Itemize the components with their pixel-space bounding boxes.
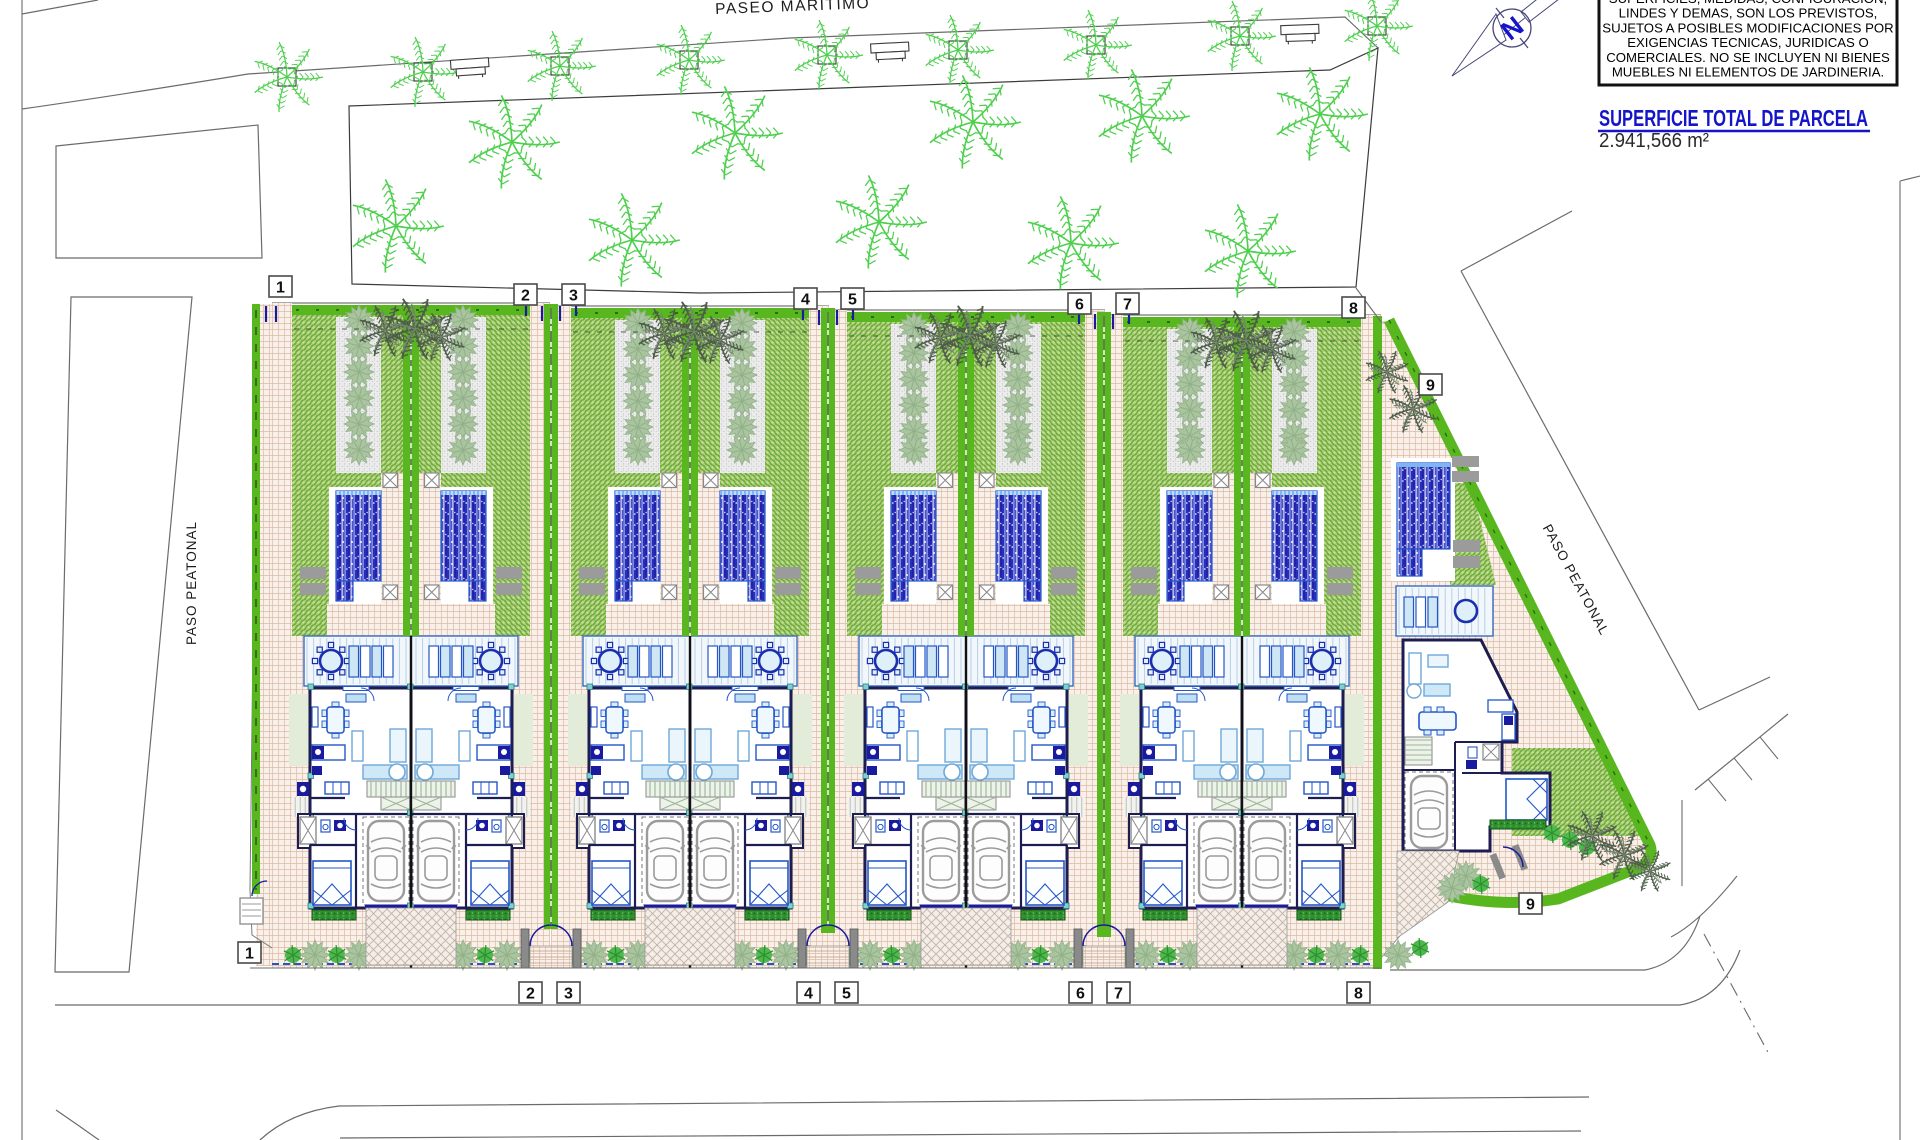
svg-text:2: 2: [526, 986, 535, 1003]
svg-text:7: 7: [1114, 986, 1123, 1003]
svg-text:8: 8: [1354, 986, 1363, 1003]
svg-text:2.941,566 m²: 2.941,566 m²: [1599, 130, 1709, 152]
svg-text:4: 4: [804, 986, 813, 1003]
svg-text:7: 7: [1123, 297, 1132, 314]
svg-text:1: 1: [276, 280, 285, 297]
svg-text:SUPERFICIE TOTAL DE PARCELA: SUPERFICIE TOTAL DE PARCELA: [1599, 105, 1868, 131]
svg-text:MUEBLES NI ELEMENTOS DE JARDIN: MUEBLES NI ELEMENTOS DE JARDINERIA.: [1612, 65, 1884, 80]
svg-text:SUJETOS A POSIBLES MODIFICACIO: SUJETOS A POSIBLES MODIFICACIONES POR: [1602, 20, 1893, 35]
svg-text:2: 2: [521, 288, 530, 305]
svg-text:9: 9: [1526, 897, 1535, 914]
svg-text:6: 6: [1075, 297, 1084, 314]
svg-text:6: 6: [1076, 986, 1085, 1003]
svg-text:LINDES Y DEMAS, SON LOS PREVIS: LINDES Y DEMAS, SON LOS PREVISTOS,: [1619, 6, 1878, 21]
svg-text:PASO PEATONAL: PASO PEATONAL: [184, 521, 199, 645]
svg-text:COMERCIALES. NO SE INCLUYEN NI: COMERCIALES. NO SE INCLUYEN NI BIENES: [1606, 50, 1890, 65]
svg-text:5: 5: [842, 986, 851, 1003]
svg-text:1: 1: [245, 946, 254, 963]
svg-text:3: 3: [564, 986, 573, 1003]
svg-text:4: 4: [801, 292, 810, 309]
svg-text:3: 3: [569, 288, 578, 305]
svg-text:9: 9: [1426, 378, 1435, 395]
svg-text:5: 5: [848, 292, 857, 309]
svg-text:EXIGENCIAS TECNICAS, JURIDICAS: EXIGENCIAS TECNICAS, JURIDICAS O: [1627, 35, 1869, 50]
svg-text:8: 8: [1349, 301, 1358, 318]
